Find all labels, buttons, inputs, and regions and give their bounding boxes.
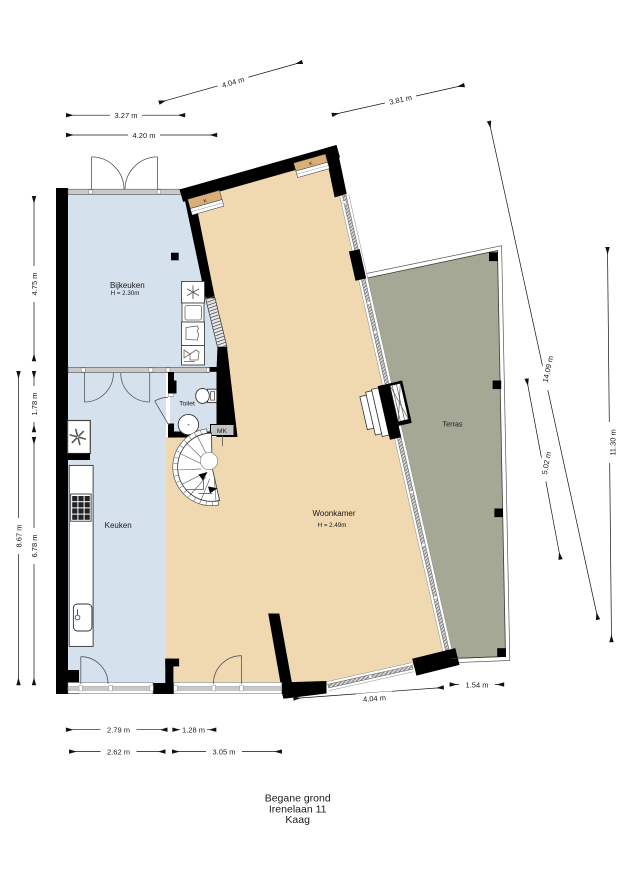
svg-text:Toilet: Toilet [179,400,195,407]
svg-text:2.62 m: 2.62 m [107,747,130,756]
svg-text:4.04 m: 4.04 m [363,693,387,704]
svg-text:3.27 m: 3.27 m [115,111,138,120]
svg-text:Bijkeuken: Bijkeuken [110,281,145,290]
svg-text:5.02 m: 5.02 m [540,451,553,475]
svg-text:H = 2.30m: H = 2.30m [111,290,140,297]
svg-text:Kaag: Kaag [285,814,310,826]
svg-text:H = 2.49m: H = 2.49m [318,522,347,529]
svg-text:1.54 m: 1.54 m [466,680,489,689]
svg-text:1.28 m: 1.28 m [182,725,205,734]
svg-text:6.78 m: 6.78 m [30,535,39,558]
svg-text:Keuken: Keuken [105,521,132,530]
svg-text:3.05 m: 3.05 m [213,747,236,756]
svg-text:11.30 m: 11.30 m [608,429,617,456]
svg-text:1.78 m: 1.78 m [30,393,39,416]
svg-text:Woonkamer: Woonkamer [313,509,356,518]
svg-text:8.67 m: 8.67 m [15,525,24,548]
svg-text:4.75 m: 4.75 m [30,273,39,296]
svg-text:2.79 m: 2.79 m [107,725,130,734]
svg-text:MK: MK [217,428,227,435]
svg-text:Terras: Terras [443,419,463,428]
svg-text:4.20 m: 4.20 m [133,131,156,140]
